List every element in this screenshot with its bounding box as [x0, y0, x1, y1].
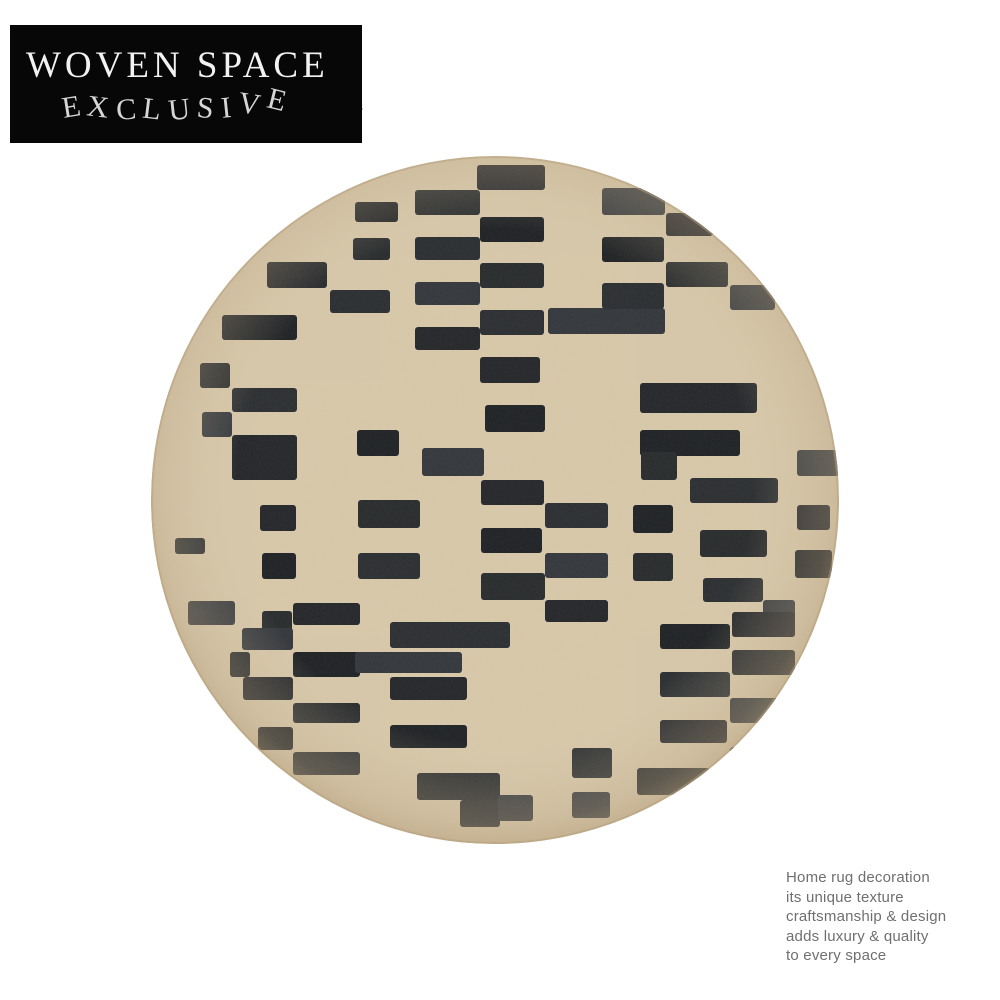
rug-pattern-bar	[730, 747, 787, 772]
brand-name: WOVEN SPACE	[10, 47, 362, 84]
brand-tagline-letter: C	[115, 94, 144, 126]
brand-tagline-letter: S	[196, 93, 222, 125]
product-caption: Home rug decorationits unique texturecra…	[786, 868, 996, 966]
brand-tagline-letter: L	[141, 93, 170, 126]
caption-line: its unique texture	[786, 888, 996, 908]
brand-tagline-letter: U	[167, 93, 199, 126]
caption-line: craftsmanship & design	[786, 907, 996, 927]
caption-line: Home rug decoration	[786, 868, 996, 888]
brand-badge: WOVEN SPACE EXCLUSIVE	[10, 25, 362, 143]
brand-tagline-letter: E	[265, 83, 297, 118]
brand-tagline: EXCLUSIVE	[10, 92, 362, 122]
product-image-rug[interactable]	[150, 155, 840, 845]
caption-line: to every space	[786, 946, 996, 966]
rug-illustration	[150, 155, 840, 845]
brand-tagline-letter: V	[236, 87, 269, 121]
caption-line: adds luxury & quality	[786, 927, 996, 947]
rug-edge-vignette	[151, 156, 839, 844]
brand-tagline-letter: X	[85, 91, 117, 124]
